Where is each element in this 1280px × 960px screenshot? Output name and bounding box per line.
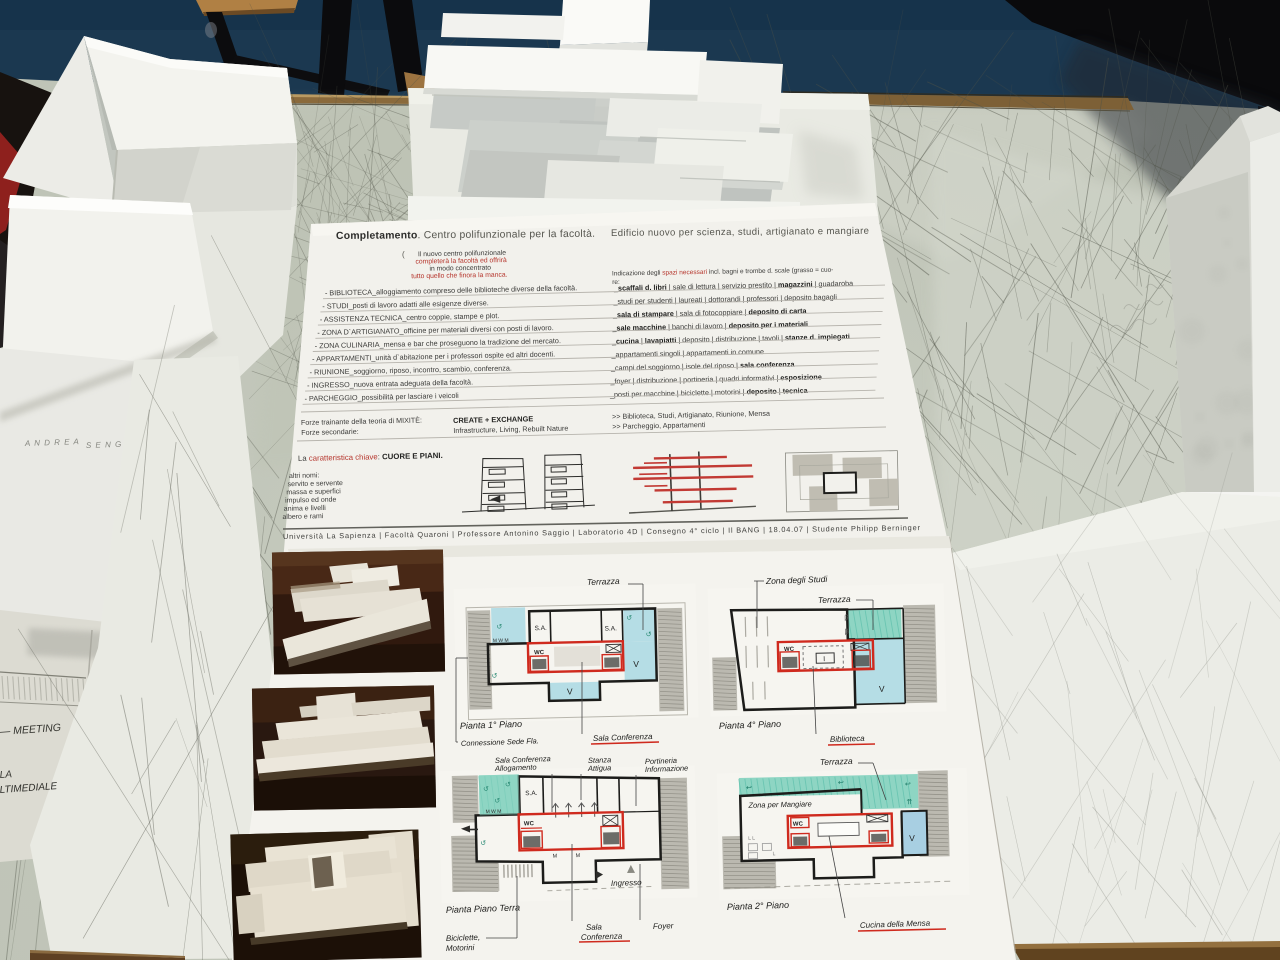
svg-text:↩: ↩: [746, 785, 752, 792]
svg-text:CREATE + EXCHANGE: CREATE + EXCHANGE: [453, 414, 533, 425]
svg-text:altri nomi:: altri nomi:: [289, 472, 320, 480]
svg-text:LA: LA: [0, 769, 13, 781]
svg-text:V: V: [879, 684, 885, 694]
svg-text:↺: ↺: [496, 624, 502, 631]
svg-text:M W M: M W M: [486, 809, 502, 815]
svg-text:Foyer: Foyer: [653, 921, 674, 931]
svg-text:↺: ↺: [646, 632, 652, 639]
svg-text:L: L: [772, 851, 775, 857]
svg-text:M W M: M W M: [493, 638, 509, 644]
svg-text:Attigua: Attigua: [587, 763, 612, 773]
svg-text:↺: ↺: [494, 798, 500, 805]
svg-text:↩: ↩: [838, 780, 844, 787]
svg-text:↺: ↺: [492, 673, 498, 680]
svg-text:⇈: ⇈: [906, 798, 912, 806]
svg-text:Informazione: Informazione: [645, 763, 689, 774]
svg-text:↺: ↺: [480, 840, 486, 847]
svg-text:WC: WC: [793, 822, 804, 828]
svg-text:Completamento. Centro polifunz: Completamento. Centro polifunzionale per…: [336, 229, 595, 242]
svg-text:albero e rami: albero e rami: [282, 513, 323, 521]
svg-text:Forze secondarie:: Forze secondarie:: [301, 427, 359, 437]
svg-text:impulso ed onde: impulso ed onde: [285, 497, 337, 505]
svg-text:β: β: [844, 615, 848, 622]
svg-text:Biciclette,: Biciclette,: [446, 933, 481, 943]
svg-text:M: M: [553, 854, 558, 860]
svg-text:Edificio nuovo per scienza, st: Edificio nuovo per scienza, studi, artig…: [611, 226, 869, 239]
svg-text:Sala: Sala: [586, 922, 603, 932]
svg-text:↺: ↺: [505, 782, 511, 789]
svg-text:servito e servente: servito e servente: [288, 480, 343, 488]
svg-text:M: M: [576, 853, 581, 859]
svg-text:Terrazza: Terrazza: [818, 594, 851, 605]
svg-text:(: (: [402, 250, 405, 259]
svg-text:Motorini: Motorini: [446, 943, 475, 953]
svg-text:S E N G: S E N G: [86, 440, 123, 450]
svg-text:I: I: [823, 656, 825, 663]
svg-text:↺: ↺: [483, 786, 489, 793]
svg-text:WC: WC: [524, 821, 535, 827]
svg-text:V: V: [633, 659, 639, 669]
svg-text:V: V: [567, 686, 573, 696]
svg-text:β: β: [845, 629, 849, 636]
svg-text:S.A.: S.A.: [525, 790, 538, 797]
svg-text:S.A.: S.A.: [534, 625, 547, 632]
svg-text:Ingresso: Ingresso: [611, 878, 643, 888]
svg-text:Zona per Mangiare: Zona per Mangiare: [747, 799, 812, 809]
svg-text:massa e superfici: massa e superfici: [286, 488, 341, 496]
svg-text:Terrazza: Terrazza: [587, 576, 620, 587]
svg-text:S.A.: S.A.: [604, 625, 617, 632]
svg-text:Conferenza: Conferenza: [581, 932, 623, 942]
svg-text:↺: ↺: [626, 615, 632, 622]
svg-text:Allogamento: Allogamento: [494, 763, 537, 773]
svg-text:Terrazza: Terrazza: [820, 756, 853, 767]
svg-text:WC: WC: [534, 650, 545, 656]
svg-text:↩: ↩: [905, 781, 911, 788]
svg-text:V: V: [909, 833, 915, 843]
svg-text:L L: L L: [748, 836, 755, 842]
svg-text:anima e livelli: anima e livelli: [284, 505, 327, 513]
svg-text:Biblioteca: Biblioteca: [830, 734, 866, 744]
